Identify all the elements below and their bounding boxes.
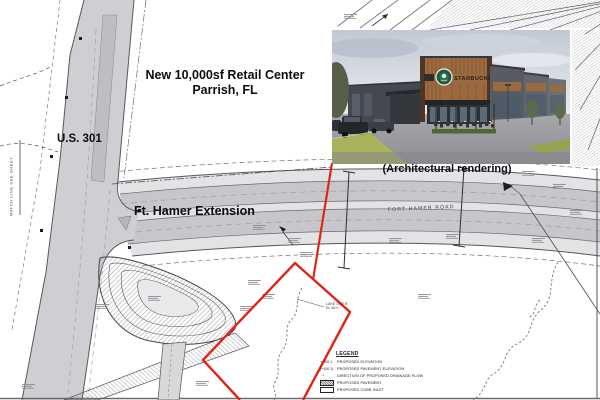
project-title: New 10,000sf Retail Center Parrish, FL xyxy=(140,68,310,98)
legend-item: PROPOSED CURB INLET xyxy=(320,386,428,393)
architectural-rendering-inset: STARBUCKS xyxy=(332,30,570,164)
legend-item: →DIRECTION OF PROPOSED DRAINAGE FLOW xyxy=(320,372,428,379)
legend-title: LEGEND xyxy=(336,351,428,357)
site-plan-page: FORT HAMER ROAD xyxy=(0,0,600,400)
lake-leader-line xyxy=(297,299,324,307)
legend-symbol-text: + 100.1 xyxy=(320,360,337,364)
legend-label: PROPOSED ELEVATION xyxy=(337,360,382,364)
legend: LEGEND + 100.1PROPOSED ELEVATION(+100.1)… xyxy=(320,351,428,393)
legend-item: + 100.1PROPOSED ELEVATION xyxy=(320,358,428,365)
us-301-label: U.S. 301 xyxy=(57,133,102,145)
legend-item: PROPOSED PAVEMENT xyxy=(320,379,428,386)
legend-item: (+100.1)PROPOSED PAVEMENT ELEVATION xyxy=(320,365,428,372)
legend-label: DIRECTION OF PROPOSED DRAINAGE FLOW xyxy=(337,374,423,378)
legend-label: PROPOSED PAVEMENT xyxy=(337,381,382,385)
lake-elevation: EL 46.0 xyxy=(326,306,347,310)
legend-label: PROPOSED PAVEMENT ELEVATION xyxy=(337,367,404,371)
legend-symbol-hatch_box xyxy=(320,380,337,386)
lake-annotation: LAKE ONE B EL 46.0 xyxy=(326,302,347,310)
retention-pond xyxy=(99,257,236,345)
legend-symbol-text: (+100.1) xyxy=(320,367,337,371)
starbucks-siren-logo xyxy=(436,69,452,85)
rendering-caption: (Architectural rendering) xyxy=(362,163,532,175)
matchline-label: MATCH LINE SEE SHEET xyxy=(9,152,14,222)
ft-hamer-label: Ft. Hamer Extension xyxy=(134,204,255,218)
project-title-line1: New 10,000sf Retail Center xyxy=(140,68,310,83)
legend-symbol-arrow: → xyxy=(320,373,337,378)
starbucks-sign-text: STARBUCKS xyxy=(454,76,492,82)
project-title-line2: Parrish, FL xyxy=(140,83,310,98)
slope-hatch-band xyxy=(64,333,249,400)
legend-symbol-open_box xyxy=(320,387,337,393)
legend-label: PROPOSED CURB INLET xyxy=(337,388,384,392)
legend-rows: + 100.1PROPOSED ELEVATION(+100.1)PROPOSE… xyxy=(320,358,428,393)
